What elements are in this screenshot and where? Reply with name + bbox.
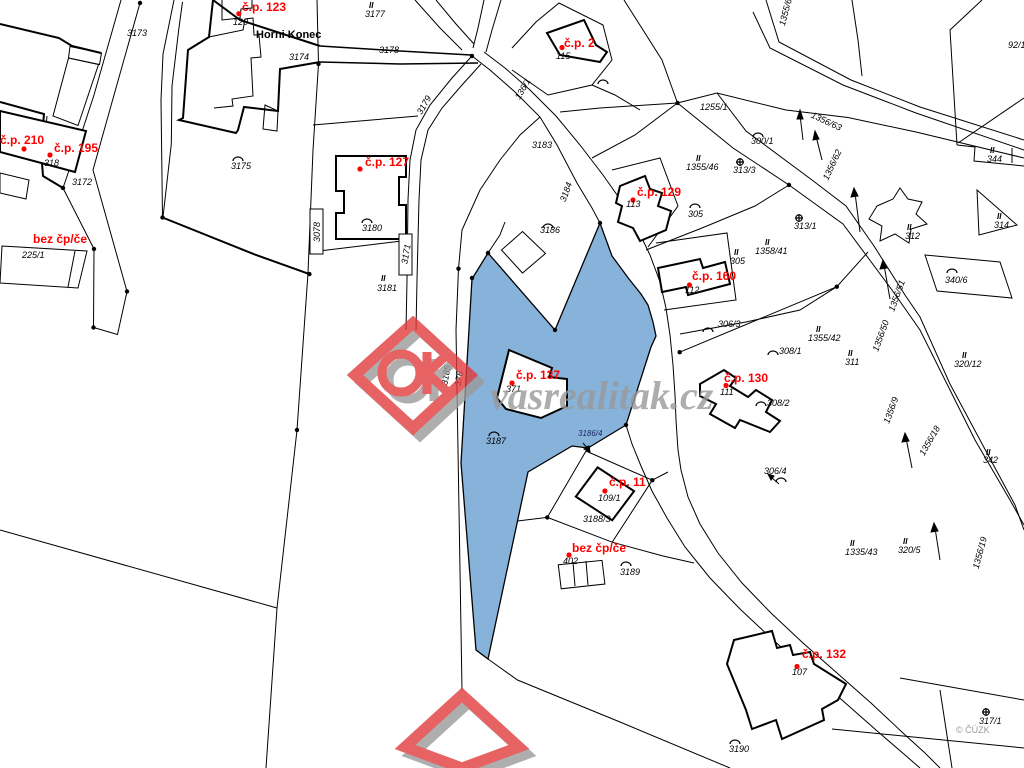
svg-text:č.p. 195: č.p. 195 xyxy=(54,141,98,155)
svg-text:3178: 3178 xyxy=(379,45,399,55)
svg-text:č.p. 129: č.p. 129 xyxy=(637,185,681,199)
svg-text:1355/42: 1355/42 xyxy=(808,333,841,343)
svg-text:3173: 3173 xyxy=(127,28,147,38)
svg-text:402: 402 xyxy=(563,556,578,566)
svg-text:112: 112 xyxy=(685,285,699,295)
svg-text:109/1: 109/1 xyxy=(598,493,621,503)
svg-text:1255/1: 1255/1 xyxy=(700,102,728,112)
svg-text:3177: 3177 xyxy=(365,9,386,19)
svg-text:II: II xyxy=(850,539,855,548)
svg-text:306/4: 306/4 xyxy=(764,466,787,476)
svg-text:3175: 3175 xyxy=(231,161,252,171)
svg-text:vasrealitak.cz: vasrealitak.cz xyxy=(490,373,714,418)
svg-text:306/3: 306/3 xyxy=(718,319,741,329)
svg-text:318: 318 xyxy=(44,158,59,168)
svg-text:3180: 3180 xyxy=(362,223,382,233)
svg-text:3172: 3172 xyxy=(72,177,92,187)
svg-text:č.p. 160: č.p. 160 xyxy=(692,269,736,283)
svg-text:č.p. 2: č.p. 2 xyxy=(564,36,595,50)
svg-text:320/5: 320/5 xyxy=(898,545,922,555)
svg-text:© ČÚZK: © ČÚZK xyxy=(956,725,990,735)
svg-text:č.p. 123: č.p. 123 xyxy=(242,0,286,14)
svg-text:115: 115 xyxy=(556,51,571,61)
svg-text:107: 107 xyxy=(792,667,808,677)
svg-text:92/1: 92/1 xyxy=(1008,40,1024,50)
svg-text:111: 111 xyxy=(720,387,734,397)
svg-text:bez čp/če: bez čp/če xyxy=(572,541,626,555)
svg-text:Horni Konec: Horni Konec xyxy=(256,29,321,41)
svg-text:3183: 3183 xyxy=(532,140,552,150)
svg-text:113: 113 xyxy=(626,199,640,209)
svg-text:1355/46: 1355/46 xyxy=(686,162,719,172)
svg-text:II: II xyxy=(907,223,912,232)
svg-text:3181: 3181 xyxy=(377,283,397,293)
svg-text:305: 305 xyxy=(730,256,746,266)
svg-text:II: II xyxy=(734,248,739,257)
svg-text:308/2: 308/2 xyxy=(767,398,790,408)
svg-text:bez čp/če: bez čp/če xyxy=(33,232,87,246)
svg-text:311: 311 xyxy=(845,357,859,367)
svg-text:225/1: 225/1 xyxy=(21,250,45,260)
svg-text:313/1: 313/1 xyxy=(794,221,817,231)
svg-text:320/12: 320/12 xyxy=(954,359,982,369)
svg-text:344: 344 xyxy=(987,154,1002,164)
svg-text:II: II xyxy=(986,448,991,457)
svg-text:č.p. 210: č.p. 210 xyxy=(0,133,44,147)
svg-text:3174: 3174 xyxy=(289,52,309,62)
svg-text:II: II xyxy=(997,212,1002,221)
svg-text:II: II xyxy=(381,274,386,283)
svg-text:II: II xyxy=(816,325,821,334)
svg-text:120: 120 xyxy=(233,17,248,27)
svg-text:3188/3: 3188/3 xyxy=(583,514,611,524)
svg-text:II: II xyxy=(369,1,374,10)
svg-text:3187: 3187 xyxy=(486,436,507,446)
svg-text:II: II xyxy=(990,146,995,155)
svg-text:č.p. 11: č.p. 11 xyxy=(609,475,646,489)
svg-text:308/1: 308/1 xyxy=(779,346,802,356)
svg-text:340/6: 340/6 xyxy=(945,275,968,285)
svg-text:314: 314 xyxy=(994,220,1009,230)
svg-text:300/1: 300/1 xyxy=(751,136,774,146)
svg-text:313/3: 313/3 xyxy=(733,165,756,175)
svg-text:č.p. 132: č.p. 132 xyxy=(802,647,846,661)
svg-text:1358/41: 1358/41 xyxy=(755,246,788,256)
svg-text:3189: 3189 xyxy=(620,567,640,577)
svg-text:3186/4: 3186/4 xyxy=(578,429,603,438)
svg-text:305: 305 xyxy=(688,209,704,219)
svg-text:II: II xyxy=(696,154,701,163)
svg-text:II: II xyxy=(962,351,967,360)
svg-text:3078: 3078 xyxy=(312,222,322,242)
svg-text:II: II xyxy=(765,238,770,247)
svg-text:1335/43: 1335/43 xyxy=(845,547,878,557)
svg-text:II: II xyxy=(848,349,853,358)
svg-text:312: 312 xyxy=(905,231,920,241)
svg-text:č.p. 127: č.p. 127 xyxy=(365,155,409,169)
svg-text:č.p. 130: č.p. 130 xyxy=(724,371,768,385)
svg-text:3190: 3190 xyxy=(729,744,749,754)
svg-text:II: II xyxy=(903,537,908,546)
